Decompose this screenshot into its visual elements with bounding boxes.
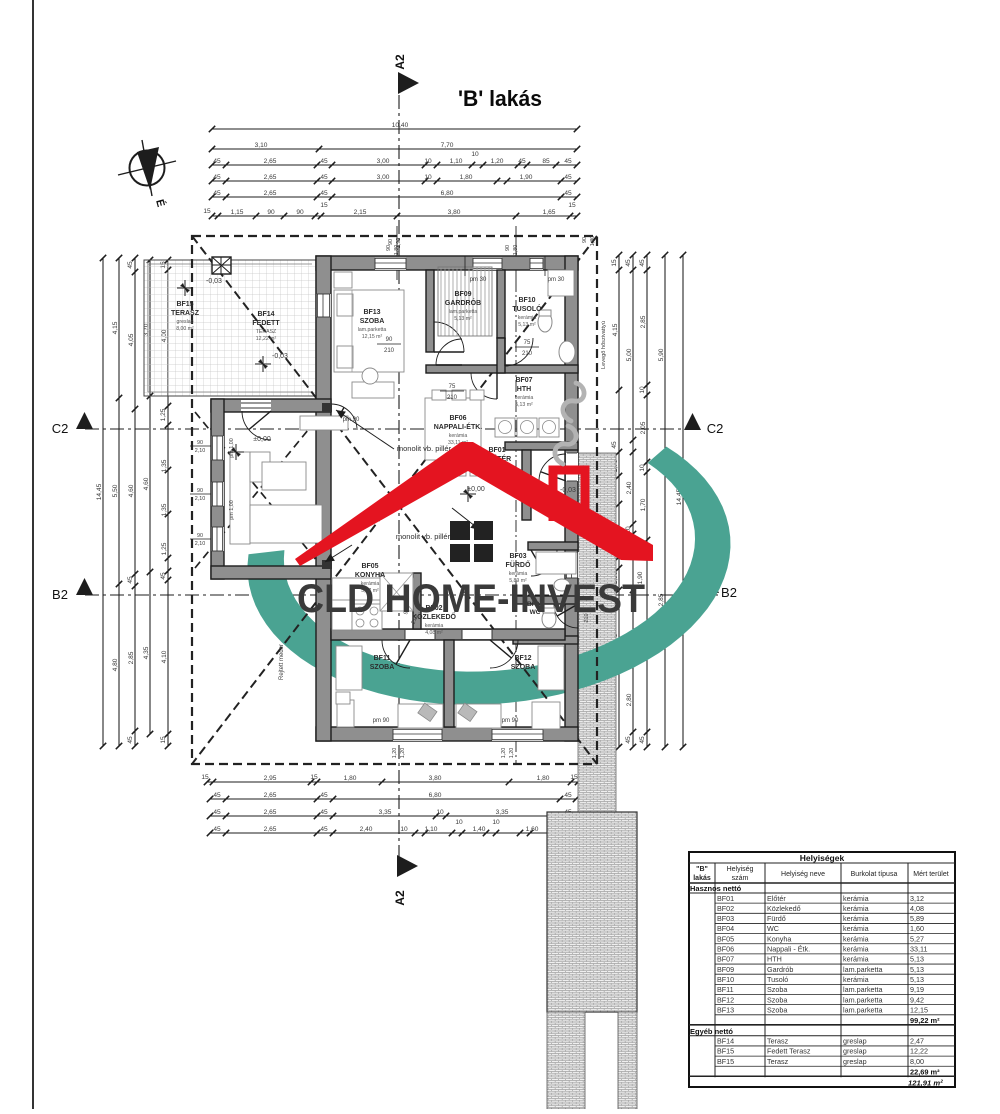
svg-text:CLD HOME-INVEST: CLD HOME-INVEST (297, 577, 645, 621)
svg-text:kerámia: kerámia (843, 945, 869, 954)
svg-text:lam.parketta: lam.parketta (843, 965, 883, 974)
svg-text:Szoba: Szoba (767, 995, 787, 1004)
svg-text:3,80: 3,80 (429, 775, 442, 782)
svg-text:2,65: 2,65 (264, 826, 277, 833)
svg-text:15: 15 (201, 774, 209, 781)
svg-text:1,15: 1,15 (231, 209, 244, 216)
svg-text:FEDETT: FEDETT (252, 320, 280, 327)
svg-text:1,20: 1,20 (400, 748, 406, 759)
svg-text:BF15: BF15 (717, 1057, 734, 1066)
svg-text:4,15: 4,15 (612, 323, 619, 336)
svg-text:A2: A2 (393, 54, 407, 70)
svg-text:greslap: greslap (843, 1037, 867, 1046)
svg-text:45: 45 (127, 736, 134, 744)
svg-text:1,60: 1,60 (526, 826, 539, 833)
svg-text:4,35: 4,35 (143, 646, 150, 659)
svg-text:2,95: 2,95 (264, 775, 277, 782)
svg-text:45: 45 (160, 572, 167, 580)
svg-text:BF13: BF13 (717, 1005, 734, 1014)
svg-text:33,11: 33,11 (910, 945, 927, 954)
svg-text:TERASZ: TERASZ (171, 310, 200, 317)
svg-text:pm 1,00: pm 1,00 (229, 500, 235, 519)
svg-text:12,22 m²: 12,22 m² (256, 336, 277, 342)
svg-text:greslap: greslap (843, 1047, 867, 1056)
svg-text:75: 75 (449, 384, 456, 390)
svg-text:Előtér: Előtér (767, 894, 786, 903)
svg-text:1,65: 1,65 (543, 209, 556, 216)
svg-text:3,35: 3,35 (496, 809, 509, 816)
svg-text:2,65: 2,65 (264, 792, 277, 799)
svg-text:1,90: 1,90 (520, 174, 533, 181)
svg-text:9,42: 9,42 (910, 995, 924, 1004)
svg-text:BF06: BF06 (717, 945, 734, 954)
svg-text:45: 45 (625, 259, 632, 267)
svg-text:BF15: BF15 (717, 1047, 734, 1056)
svg-text:5,13 m²: 5,13 m² (454, 316, 472, 322)
svg-text:9,19: 9,19 (910, 985, 924, 994)
svg-text:45: 45 (564, 174, 572, 181)
svg-text:kerámia: kerámia (843, 975, 869, 984)
svg-text:BF04: BF04 (717, 924, 734, 933)
svg-text:Helyiség: Helyiség (727, 866, 754, 873)
svg-text:8,00 m²: 8,00 m² (176, 326, 194, 332)
svg-text:5,13: 5,13 (910, 965, 924, 974)
svg-text:5,13: 5,13 (910, 955, 924, 964)
svg-text:Fedett Terasz: Fedett Terasz (767, 1047, 811, 1056)
svg-text:2,10: 2,10 (195, 448, 206, 454)
svg-text:10: 10 (400, 826, 408, 833)
svg-text:Gardrób: Gardrób (767, 965, 793, 974)
svg-text:pm 30: pm 30 (470, 277, 487, 283)
svg-text:2,10: 2,10 (195, 496, 206, 502)
svg-text:10: 10 (639, 464, 646, 472)
svg-text:"B": "B" (696, 866, 708, 873)
svg-text:BF11: BF11 (374, 655, 391, 662)
svg-text:BF02: BF02 (717, 904, 734, 913)
svg-text:5,13 m²: 5,13 m² (515, 402, 533, 408)
svg-text:90: 90 (197, 533, 203, 539)
svg-text:45: 45 (127, 261, 134, 269)
svg-text:45: 45 (611, 441, 618, 449)
svg-text:1,80: 1,80 (513, 245, 519, 256)
svg-text:3,00: 3,00 (377, 174, 390, 181)
svg-text:1,70: 1,70 (640, 498, 647, 511)
svg-text:210: 210 (522, 351, 533, 357)
svg-text:kerámia: kerámia (449, 433, 468, 439)
svg-text:BF06: BF06 (449, 415, 466, 422)
svg-text:kerámia: kerámia (843, 934, 869, 943)
svg-text:15: 15 (570, 774, 578, 781)
svg-text:1,20: 1,20 (509, 748, 515, 759)
svg-text:Mért terület: Mért terület (913, 871, 948, 878)
svg-text:Fürdő: Fürdő (767, 914, 786, 923)
svg-text:5,90: 5,90 (658, 348, 665, 361)
svg-text:Rejtett meder: Rejtett meder (279, 644, 285, 680)
svg-text:A2: A2 (393, 890, 407, 906)
svg-text:45: 45 (625, 736, 632, 744)
svg-text:210: 210 (384, 348, 395, 354)
svg-text:1,20: 1,20 (501, 748, 507, 759)
svg-text:BF05: BF05 (361, 563, 378, 570)
svg-text:1,80: 1,80 (590, 236, 596, 247)
svg-text:210: 210 (447, 395, 458, 401)
svg-text:kerámia: kerámia (843, 904, 869, 913)
svg-text:TUSOLÓ: TUSOLÓ (512, 304, 542, 313)
svg-text:3,12: 3,12 (910, 894, 924, 903)
svg-text:BF09: BF09 (717, 965, 734, 974)
svg-text:±0,00: ±0,00 (467, 486, 485, 493)
svg-text:90: 90 (197, 440, 203, 446)
svg-text:kerámia: kerámia (843, 894, 869, 903)
svg-text:15: 15 (310, 774, 318, 781)
svg-text:Helyiségek: Helyiségek (800, 853, 845, 863)
svg-text:kerámia: kerámia (425, 623, 444, 629)
svg-text:1,80: 1,80 (460, 174, 473, 181)
svg-text:90: 90 (296, 209, 304, 216)
svg-text:45: 45 (213, 826, 221, 833)
svg-text:10: 10 (639, 386, 646, 394)
svg-text:GARDRÓB: GARDRÓB (445, 298, 481, 307)
svg-text:3,10: 3,10 (255, 142, 268, 149)
svg-text:75: 75 (524, 340, 531, 346)
svg-text:4,60: 4,60 (143, 477, 150, 490)
svg-text:SZOBA: SZOBA (511, 664, 536, 671)
svg-text:4,60: 4,60 (128, 484, 135, 497)
svg-text:45: 45 (213, 158, 221, 165)
svg-text:BF09: BF09 (454, 291, 471, 298)
svg-text:1,40: 1,40 (473, 826, 486, 833)
svg-text:10: 10 (424, 158, 432, 165)
svg-text:-0,03: -0,03 (272, 353, 288, 360)
svg-text:12,15: 12,15 (910, 1005, 928, 1014)
svg-text:1,25: 1,25 (160, 408, 167, 421)
svg-text:greslap: greslap (843, 1057, 867, 1066)
svg-text:BF14: BF14 (257, 311, 274, 318)
svg-text:45: 45 (213, 174, 221, 181)
svg-text:10: 10 (436, 809, 444, 816)
svg-text:2,15: 2,15 (354, 209, 367, 216)
svg-text:szám: szám (732, 875, 749, 882)
svg-text:90: 90 (386, 337, 393, 343)
svg-text:Levegő hőszivattyú: Levegő hőszivattyú (601, 321, 607, 369)
svg-text:1,35: 1,35 (161, 459, 168, 472)
svg-text:lakás: lakás (693, 875, 711, 882)
svg-text:BF03: BF03 (717, 914, 734, 923)
svg-text:3,80: 3,80 (448, 209, 461, 216)
svg-text:1,20: 1,20 (392, 748, 398, 759)
svg-text:B2: B2 (52, 587, 68, 602)
svg-text:6,80: 6,80 (429, 792, 442, 799)
svg-text:45: 45 (564, 190, 572, 197)
svg-text:14,45: 14,45 (96, 483, 103, 500)
svg-text:BF10: BF10 (717, 975, 734, 984)
svg-text:1,90: 1,90 (396, 238, 402, 249)
svg-text:2,85: 2,85 (658, 593, 665, 606)
svg-text:4,05: 4,05 (128, 333, 135, 346)
svg-text:2,40: 2,40 (626, 481, 633, 494)
svg-text:2,10: 2,10 (195, 541, 206, 547)
svg-text:Közlekedő: Közlekedő (767, 904, 801, 913)
svg-text:HTH: HTH (767, 955, 782, 964)
svg-text:lam.parketta: lam.parketta (843, 995, 883, 1004)
svg-text:45: 45 (213, 809, 221, 816)
svg-text:2,47: 2,47 (910, 1037, 924, 1046)
svg-text:10: 10 (424, 174, 432, 181)
svg-text:BF10: BF10 (518, 297, 535, 304)
svg-text:15: 15 (568, 202, 576, 209)
svg-text:5,13: 5,13 (910, 975, 924, 984)
svg-text:6,80: 6,80 (441, 190, 454, 197)
svg-text:Szoba: Szoba (767, 1005, 787, 1014)
svg-text:pm 90: pm 90 (343, 417, 360, 423)
svg-text:pm 90: pm 90 (373, 718, 390, 724)
svg-text:FÜRDŐ: FÜRDŐ (506, 560, 531, 569)
svg-text:BF01: BF01 (717, 894, 734, 903)
svg-text:121,91 m²: 121,91 m² (908, 1078, 943, 1087)
svg-text:45: 45 (320, 174, 328, 181)
svg-text:2,65: 2,65 (264, 174, 277, 181)
svg-text:BF03: BF03 (509, 553, 526, 560)
svg-text:BF07: BF07 (717, 955, 734, 964)
svg-text:10: 10 (471, 151, 479, 158)
svg-text:4,08 m²: 4,08 m² (425, 630, 443, 636)
svg-text:22,69 m²: 22,69 m² (910, 1067, 940, 1076)
svg-text:Burkolat típusa: Burkolat típusa (851, 871, 898, 878)
svg-text:15: 15 (320, 202, 328, 209)
svg-text:90: 90 (197, 488, 203, 494)
svg-text:2,65: 2,65 (264, 809, 277, 816)
svg-text:2,40: 2,40 (360, 826, 373, 833)
svg-text:kerámia: kerámia (843, 914, 869, 923)
svg-text:7,70: 7,70 (441, 142, 454, 149)
svg-text:45: 45 (320, 826, 328, 833)
svg-text:C2: C2 (52, 421, 69, 436)
svg-text:lam.parketta: lam.parketta (358, 327, 387, 333)
svg-text:5,50: 5,50 (112, 484, 119, 497)
svg-text:45: 45 (320, 809, 328, 816)
svg-text:1,10: 1,10 (450, 158, 463, 165)
svg-text:pm 90: pm 90 (502, 718, 519, 724)
svg-text:Tusoló: Tusoló (767, 975, 788, 984)
svg-text:TERASZ: TERASZ (256, 329, 276, 335)
svg-text:BF11: BF11 (717, 985, 734, 994)
svg-text:lam.parketta: lam.parketta (449, 309, 478, 315)
svg-text:Konyha: Konyha (767, 934, 791, 943)
svg-text:5,27: 5,27 (910, 934, 924, 943)
svg-text:10,40: 10,40 (392, 122, 409, 129)
svg-text:90: 90 (505, 245, 511, 251)
svg-text:5,89: 5,89 (910, 914, 924, 923)
svg-text:5,13 m²: 5,13 m² (518, 322, 536, 328)
svg-text:90: 90 (388, 239, 394, 245)
svg-text:pm 1,00: pm 1,00 (229, 438, 235, 457)
svg-text:2,85: 2,85 (640, 315, 647, 328)
svg-text:12,22: 12,22 (910, 1047, 928, 1056)
svg-text:Szoba: Szoba (767, 985, 787, 994)
svg-text:-0,03: -0,03 (206, 278, 222, 285)
svg-text:1,25: 1,25 (161, 542, 168, 555)
svg-text:Nappali - Étk.: Nappali - Étk. (767, 945, 810, 954)
svg-text:SZOBA: SZOBA (360, 318, 385, 325)
svg-text:99,22 m²: 99,22 m² (910, 1016, 940, 1025)
svg-text:45: 45 (213, 792, 221, 799)
svg-text:85: 85 (542, 158, 550, 165)
svg-text:kerámia: kerámia (843, 924, 869, 933)
svg-text:1,80: 1,80 (537, 775, 550, 782)
svg-text:NAPPALI-ÉTK.: NAPPALI-ÉTK. (434, 422, 483, 431)
svg-text:45: 45 (564, 158, 572, 165)
svg-text:15: 15 (203, 208, 211, 215)
svg-text:BF05: BF05 (717, 934, 734, 943)
svg-text:-0,03: -0,03 (560, 487, 576, 494)
svg-text:10: 10 (492, 819, 500, 826)
svg-text:'B' lakás: 'B' lakás (458, 86, 542, 111)
svg-text:BF15: BF15 (176, 301, 193, 308)
svg-text:2,05: 2,05 (640, 421, 647, 434)
svg-text:4,80: 4,80 (112, 658, 119, 671)
svg-text:45: 45 (320, 190, 328, 197)
svg-text:10: 10 (455, 819, 463, 826)
svg-text:15: 15 (160, 736, 167, 744)
svg-text:1,80: 1,80 (344, 775, 357, 782)
svg-text:45: 45 (320, 792, 328, 799)
svg-text:90: 90 (582, 237, 588, 243)
svg-text:3,35: 3,35 (379, 809, 392, 816)
svg-text:lam.parketta: lam.parketta (843, 985, 883, 994)
svg-text:45: 45 (564, 792, 572, 799)
svg-text:90: 90 (267, 209, 275, 216)
svg-text:8,00: 8,00 (910, 1057, 924, 1066)
svg-text:2,80: 2,80 (626, 693, 633, 706)
svg-text:4,08: 4,08 (910, 904, 924, 913)
svg-text:kerámia: kerámia (518, 315, 537, 321)
svg-text:45: 45 (320, 158, 328, 165)
svg-text:BF07: BF07 (515, 377, 532, 384)
svg-text:lam.parketta: lam.parketta (843, 1005, 883, 1014)
svg-text:Helyiség neve: Helyiség neve (781, 871, 825, 878)
svg-text:Egyéb nettó: Egyéb nettó (690, 1027, 733, 1036)
svg-text:2,85: 2,85 (128, 651, 135, 664)
svg-text:1,20: 1,20 (491, 158, 504, 165)
svg-text:BF12: BF12 (514, 655, 531, 662)
svg-text:4,15: 4,15 (112, 321, 119, 334)
svg-text:12,15 m²: 12,15 m² (362, 334, 383, 340)
svg-text:45: 45 (213, 190, 221, 197)
svg-text:WC: WC (767, 924, 779, 933)
svg-text:1,10: 1,10 (425, 826, 438, 833)
svg-text:1,35: 1,35 (161, 503, 168, 516)
svg-text:kerámia: kerámia (515, 395, 534, 401)
svg-text:Hasznos nettó: Hasznos nettó (690, 884, 742, 893)
svg-text:HTH: HTH (517, 386, 531, 393)
svg-text:BF12: BF12 (717, 995, 734, 1004)
svg-text:2,65: 2,65 (264, 190, 277, 197)
svg-text:greslap: greslap (176, 319, 193, 325)
svg-text:pm 30: pm 30 (548, 277, 565, 283)
svg-text:C2: C2 (707, 421, 724, 436)
svg-text:2,65: 2,65 (264, 158, 277, 165)
svg-text:SZOBA: SZOBA (370, 664, 395, 671)
svg-text:±0,00: ±0,00 (253, 436, 271, 443)
svg-text:5,00: 5,00 (626, 348, 633, 361)
svg-text:monolit vb. pillér: monolit vb. pillér (396, 532, 451, 541)
svg-text:B2: B2 (721, 585, 737, 600)
svg-text:kerámia: kerámia (843, 955, 869, 964)
svg-text:45: 45 (639, 259, 646, 267)
svg-text:monolit vb. pillér: monolit vb. pillér (397, 444, 452, 453)
svg-text:15: 15 (611, 259, 618, 267)
svg-text:45: 45 (518, 158, 526, 165)
svg-text:45: 45 (639, 736, 646, 744)
svg-text:1,60: 1,60 (910, 924, 924, 933)
svg-text:3,00: 3,00 (377, 158, 390, 165)
svg-text:BF13: BF13 (363, 309, 380, 316)
svg-text:BF14: BF14 (717, 1037, 734, 1046)
svg-text:Terasz: Terasz (767, 1037, 789, 1046)
svg-text:4,10: 4,10 (161, 650, 168, 663)
svg-text:45: 45 (127, 576, 134, 584)
svg-text:Terasz: Terasz (767, 1057, 789, 1066)
